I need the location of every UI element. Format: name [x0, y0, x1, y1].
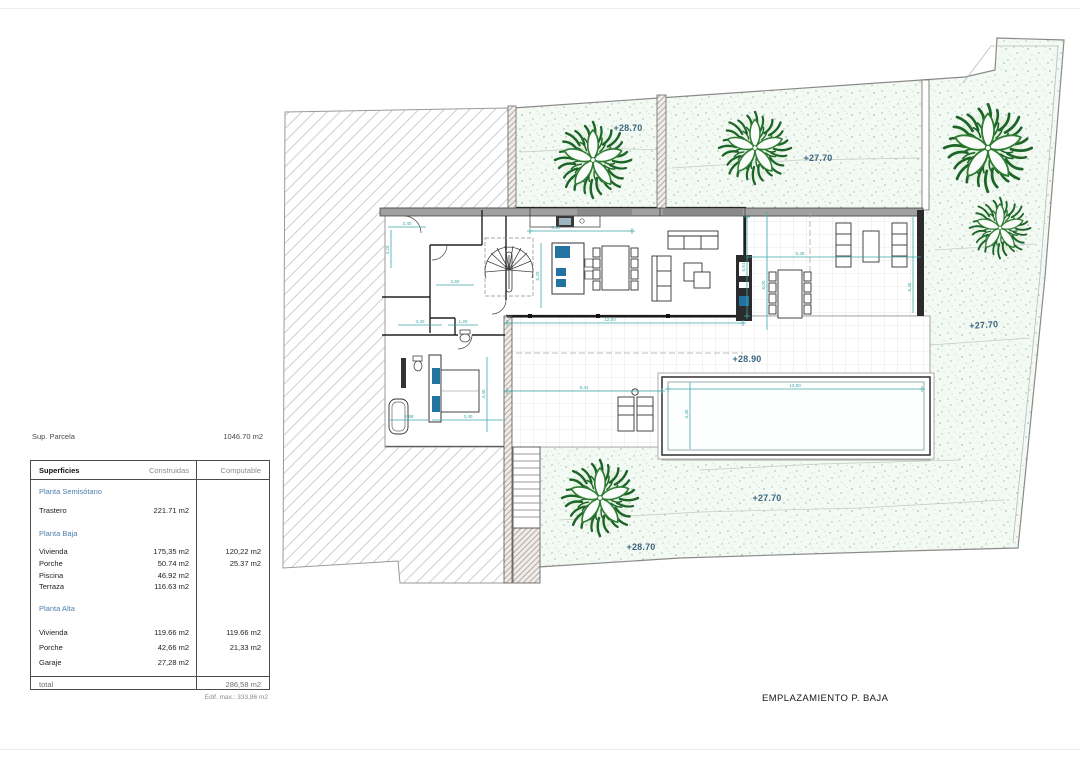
tree-icon — [562, 460, 638, 536]
row-construida: 27,28 m2 — [39, 658, 189, 667]
table-row: Porche 42,66 m2 21,33 m2 — [31, 643, 269, 653]
dimension-label: 5,45 — [907, 282, 912, 291]
table-total-row: total 286,58 m2 — [31, 680, 269, 690]
dimension-label: 4,20 — [385, 245, 390, 254]
table-row: Vivienda 119.66 m2 119.66 m2 — [31, 628, 269, 638]
dimension-label: 12,00 — [604, 317, 616, 322]
tree-icon — [970, 198, 1031, 259]
parcel-area-label: Sup. Parcela — [32, 432, 75, 441]
dimension-label: 5,61 — [741, 262, 746, 271]
dimension-label: 5,30 — [796, 251, 805, 256]
tree-icon — [944, 104, 1031, 191]
dining-table — [593, 246, 638, 290]
parcel-area-line: Sup. Parcela 1046.70 m2 — [32, 432, 263, 441]
dimension-label: 6,00 — [761, 280, 766, 289]
sheet-border-bottom — [0, 749, 1080, 750]
exterior-stairs — [513, 447, 540, 528]
dimension-label: 8,44 — [580, 385, 589, 390]
row-computable: 25.37 m2 — [195, 559, 261, 568]
table-row: Garaje 27,28 m2 — [31, 658, 269, 668]
row-construida: 221.71 m2 — [39, 506, 189, 515]
total-value: 286,58 m2 — [195, 680, 261, 689]
tree-icon — [719, 112, 791, 184]
table-row: Vivienda 175,35 m2 120,22 m2 — [31, 547, 269, 557]
table-header-row: Superficies Construidas Computable — [31, 466, 269, 476]
row-construida: 42,66 m2 — [39, 643, 189, 652]
total-label: total — [39, 680, 53, 689]
elevation-label: +28.90 — [733, 354, 762, 364]
header-computable: Computable — [195, 466, 261, 475]
dimension-label: 8,10 — [552, 225, 561, 230]
table-total-divider — [31, 676, 269, 677]
table-row: Terraza 116.63 m2 — [31, 582, 269, 592]
sheet-border-top — [0, 8, 1080, 9]
table-header-divider — [31, 479, 269, 480]
dimension-label: 3,40 — [416, 319, 425, 324]
row-computable: 120,22 m2 — [195, 547, 261, 556]
table-row: Trastero 221.71 m2 — [31, 506, 269, 516]
section-title-row: Planta Alta — [31, 604, 269, 614]
elevation-label: +27.70 — [753, 493, 782, 503]
elevation-label: +28.70 — [627, 542, 656, 552]
table-row: Porche 50.74 m2 25.37 m2 — [31, 559, 269, 569]
elevation-label: +27.70 — [804, 153, 833, 163]
porch-end-wall — [917, 210, 924, 316]
dimension-label: 4,40 — [481, 389, 486, 398]
row-construida: 175,35 m2 — [39, 547, 189, 556]
drawing-title: EMPLAZAMIENTO P. BAJA — [762, 693, 888, 704]
elevation-label: +27.70 — [969, 319, 999, 331]
row-construida: 46.92 m2 — [39, 571, 189, 580]
outdoor-dining-table — [769, 270, 811, 318]
section-title-row: Planta Semisótano — [31, 487, 269, 497]
dimension-label: 5,29 — [535, 271, 540, 280]
row-construida: 116.63 m2 — [39, 582, 189, 591]
dimension-label: 2,60 — [451, 279, 460, 284]
top-retaining-wall — [380, 208, 923, 216]
dimension-label: 13,80 — [789, 383, 801, 388]
row-computable: 21,33 m2 — [195, 643, 261, 652]
row-construida: 119.66 m2 — [39, 628, 189, 637]
dimension-label: 3,40 — [464, 414, 473, 419]
tree-icon — [555, 122, 631, 198]
dimension-label: 2,40 — [403, 221, 412, 226]
drawing-sheet: 2,40 4,20 2,60 8,10 5,29 12,00 8,44 5,61… — [0, 0, 1080, 758]
elevation-label: +28.70 — [614, 123, 643, 133]
section-planta-alta: Planta Alta — [39, 604, 75, 613]
dimension-label: 2,88 — [405, 414, 414, 419]
row-construida: 50.74 m2 — [39, 559, 189, 568]
row-computable: 119.66 m2 — [195, 628, 261, 637]
parcel-area-value: 1046.70 m2 — [223, 432, 263, 441]
section-title-row: Planta Baja — [31, 529, 269, 539]
kitchen-counter — [530, 216, 600, 227]
section-planta-semisotano: Planta Semisótano — [39, 487, 102, 496]
surfaces-table: Superficies Construidas Computable Plant… — [30, 460, 270, 690]
dimension-label: 3,40 — [684, 409, 689, 418]
section-planta-baja: Planta Baja — [39, 529, 77, 538]
edif-max-note: Edif. max.: 333,86 m2 — [30, 694, 268, 701]
table-row: Piscina 46.92 m2 — [31, 571, 269, 581]
dimension-label: 1,20 — [459, 319, 468, 324]
header-construidas: Construidas — [39, 466, 189, 475]
